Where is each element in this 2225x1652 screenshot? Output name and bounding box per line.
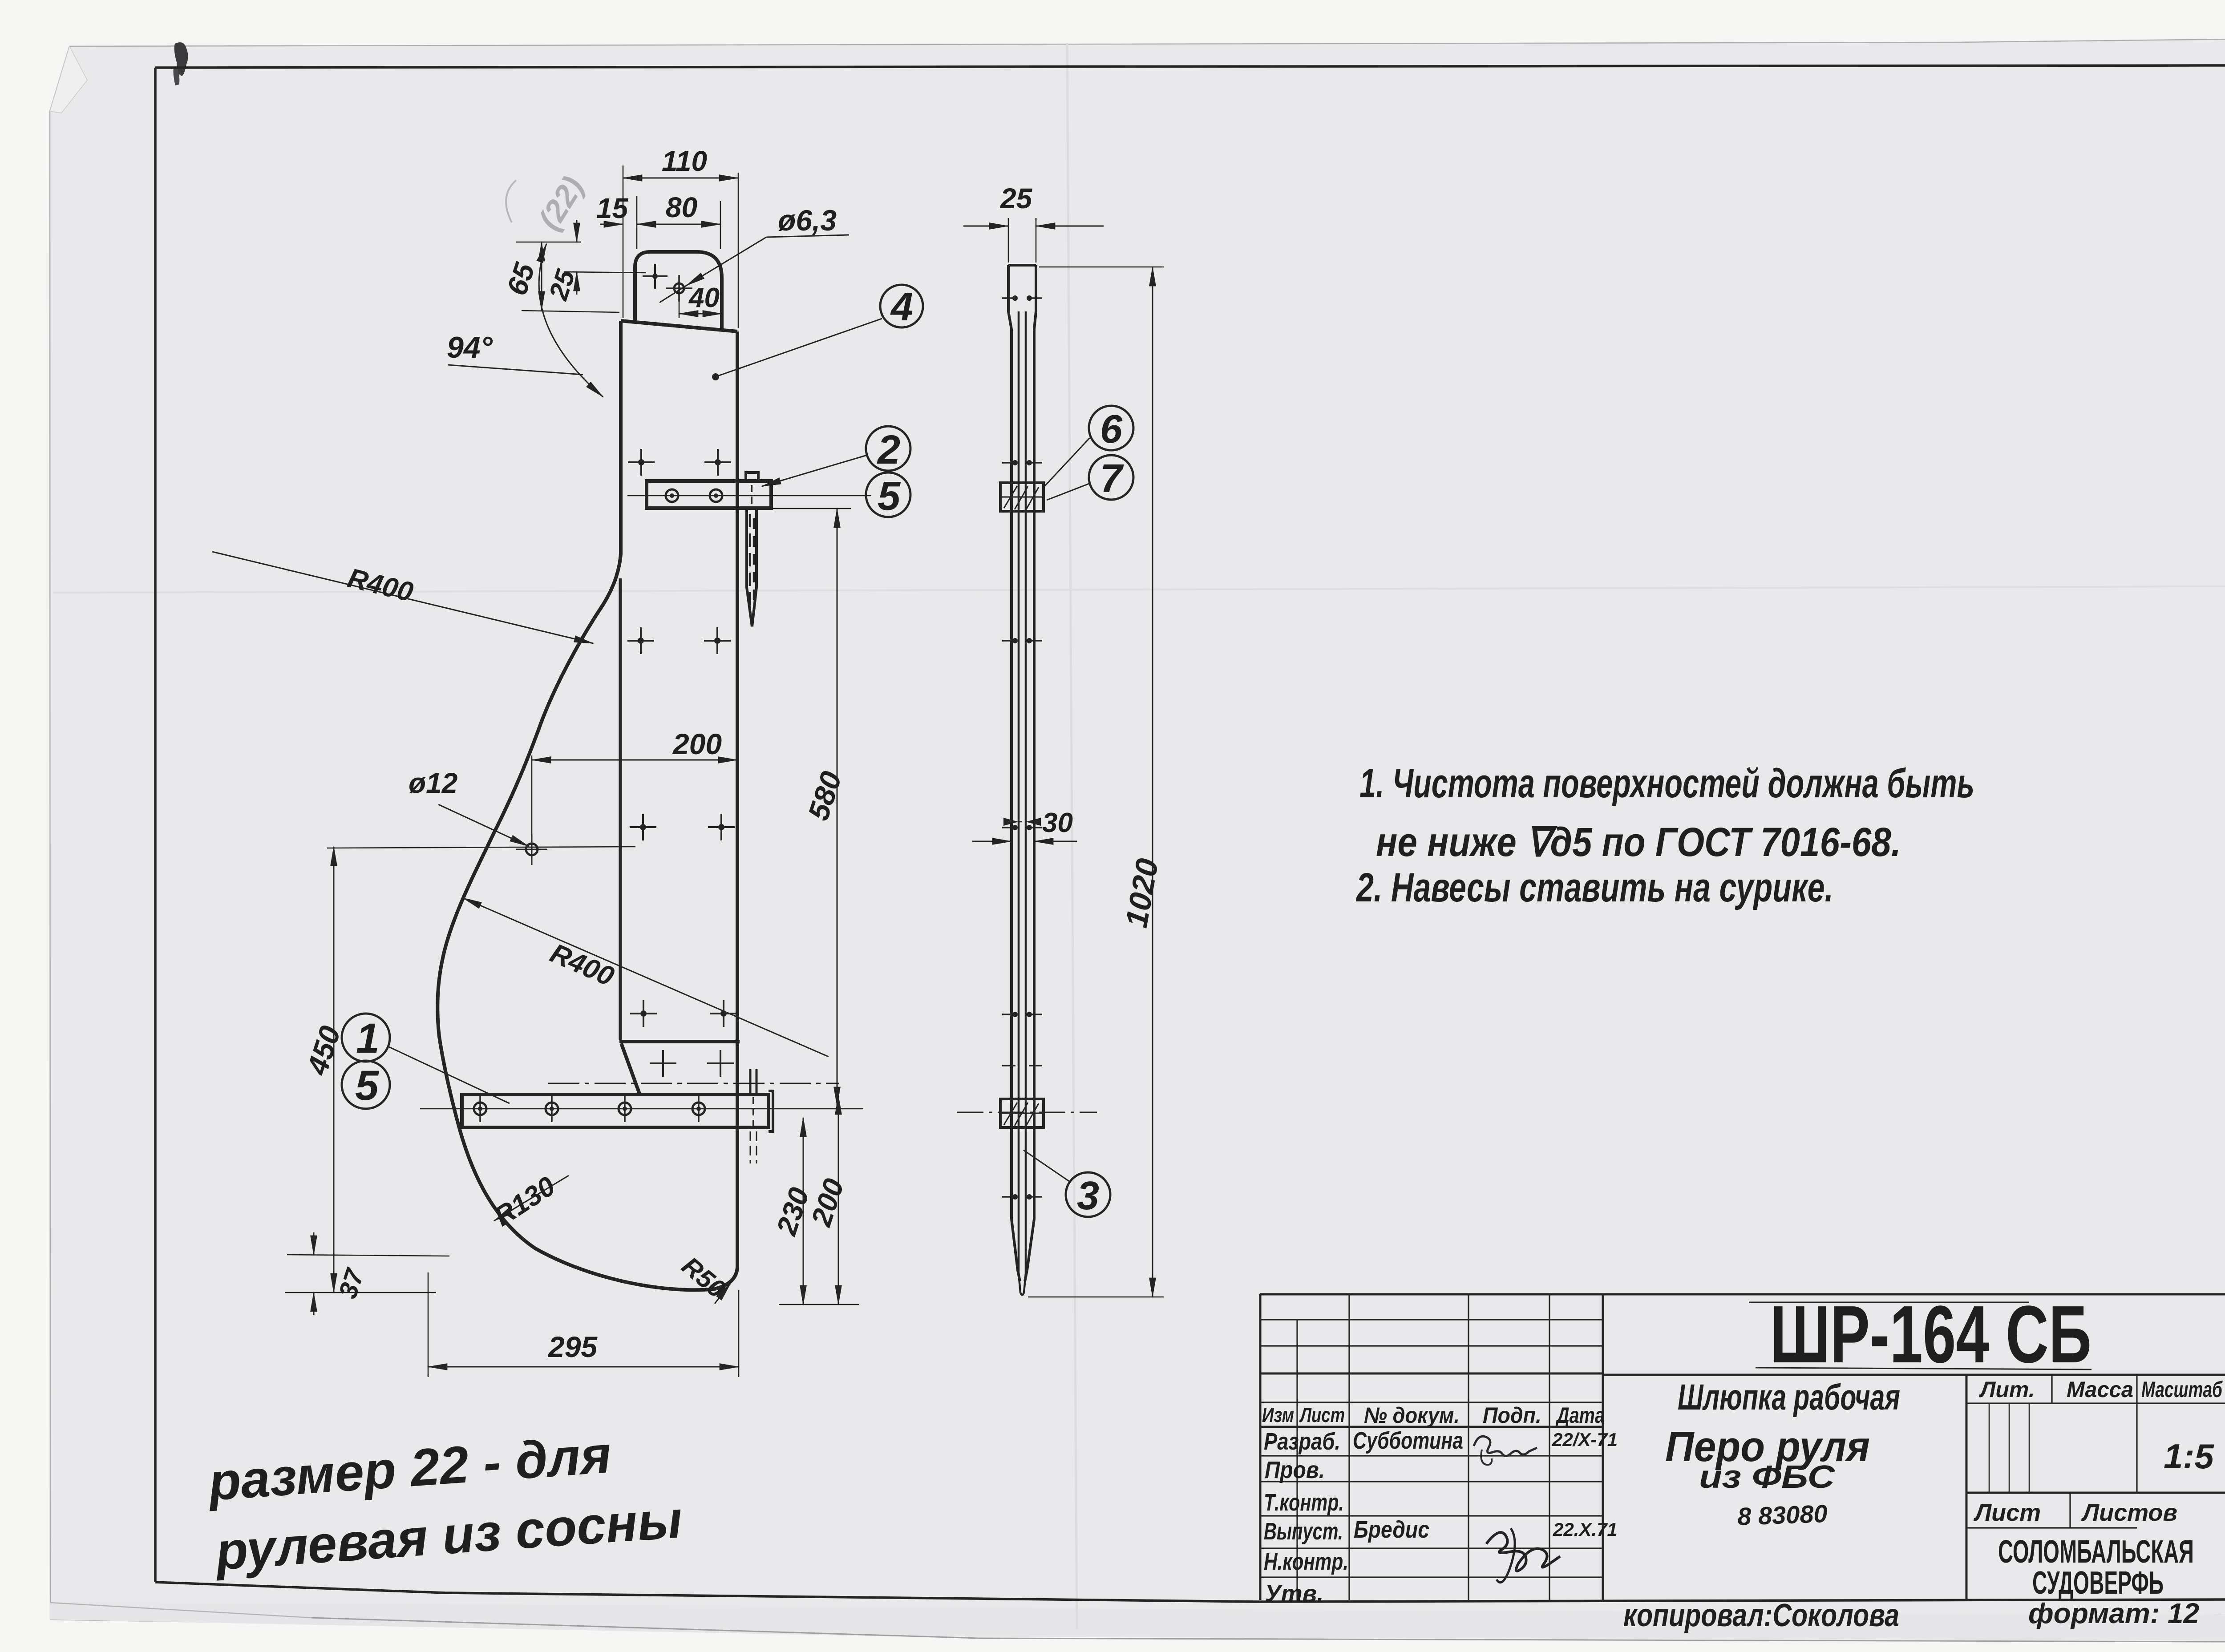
svg-text:Выпуст.: Выпуст. (1264, 1518, 1343, 1545)
svg-text:30: 30 (1042, 808, 1073, 838)
svg-text:Лист: Лист (1973, 1499, 2041, 1526)
svg-text:110: 110 (662, 145, 707, 177)
svg-text:копировал:Соколова: копировал:Соколова (1623, 1598, 1899, 1633)
svg-text:Лит.: Лит. (1979, 1377, 2035, 1402)
svg-text:Дата: Дата (1555, 1403, 1605, 1428)
svg-text:Бредис: Бредис (1354, 1516, 1429, 1543)
svg-text:Пров.: Пров. (1265, 1457, 1325, 1483)
svg-text:формат: 12: формат: 12 (2028, 1597, 2199, 1629)
svg-text:Масштаб: Масштаб (2141, 1377, 2223, 1402)
svg-text:из ФБС: из ФБС (1699, 1459, 1835, 1495)
svg-text:4: 4 (890, 285, 913, 329)
svg-text:Утв.: Утв. (1265, 1580, 1323, 1607)
svg-text:1. Чистота поверхностей должна: 1. Чистота поверхностей должна быть (1359, 761, 1974, 806)
svg-text:№ докум.: № докум. (1364, 1403, 1460, 1428)
svg-text:Листов: Листов (2081, 1499, 2177, 1526)
svg-text:СУДОВЕРФЬ: СУДОВЕРФЬ (2032, 1565, 2164, 1601)
svg-text:22.X.71: 22.X.71 (1553, 1519, 1618, 1540)
svg-text:Лист: Лист (1299, 1403, 1345, 1426)
svg-text:2. Навесы ставить на сурике.: 2. Навесы ставить на сурике. (1355, 865, 1833, 910)
svg-text:2: 2 (877, 427, 900, 473)
svg-text:200: 200 (672, 727, 722, 760)
svg-text:ø12: ø12 (409, 767, 457, 799)
svg-text:ø6,3: ø6,3 (778, 204, 837, 237)
svg-text:Масса: Масса (2067, 1377, 2133, 1402)
svg-text:6: 6 (1100, 407, 1123, 452)
svg-text:15: 15 (596, 192, 629, 224)
svg-text:5: 5 (878, 473, 901, 519)
svg-text:1: 1 (356, 1015, 380, 1062)
svg-text:5: 5 (355, 1062, 379, 1109)
svg-text:295: 295 (547, 1330, 598, 1363)
svg-text:Разраб.: Разраб. (1264, 1428, 1340, 1455)
svg-text:Подп.: Подп. (1483, 1403, 1541, 1428)
svg-text:Шлюпка рабочая: Шлюпка рабочая (1678, 1377, 1900, 1418)
svg-text:25: 25 (1000, 182, 1033, 214)
svg-text:Изм: Изм (1262, 1403, 1294, 1426)
svg-text:3: 3 (1077, 1174, 1099, 1218)
svg-text:Субботина: Субботина (1353, 1427, 1463, 1454)
svg-text:80: 80 (666, 191, 697, 223)
svg-text:94°: 94° (447, 331, 493, 364)
svg-text:Т.контр.: Т.контр. (1264, 1489, 1344, 1516)
svg-text:СОЛОМБАЛЬСКАЯ: СОЛОМБАЛЬСКАЯ (1998, 1534, 2194, 1570)
svg-text:Н.контр.: Н.контр. (1264, 1548, 1348, 1575)
svg-text:22/X-71: 22/X-71 (1552, 1429, 1618, 1450)
svg-text:40: 40 (688, 283, 720, 313)
svg-text:7: 7 (1100, 456, 1124, 501)
svg-text:8 83080: 8 83080 (1737, 1499, 1828, 1531)
svg-text:не ниже ∇д5 по ГОСТ 7016-68.: не ниже ∇д5 по ГОСТ 7016-68. (1376, 820, 1901, 865)
svg-text:1:5: 1:5 (2164, 1437, 2214, 1476)
